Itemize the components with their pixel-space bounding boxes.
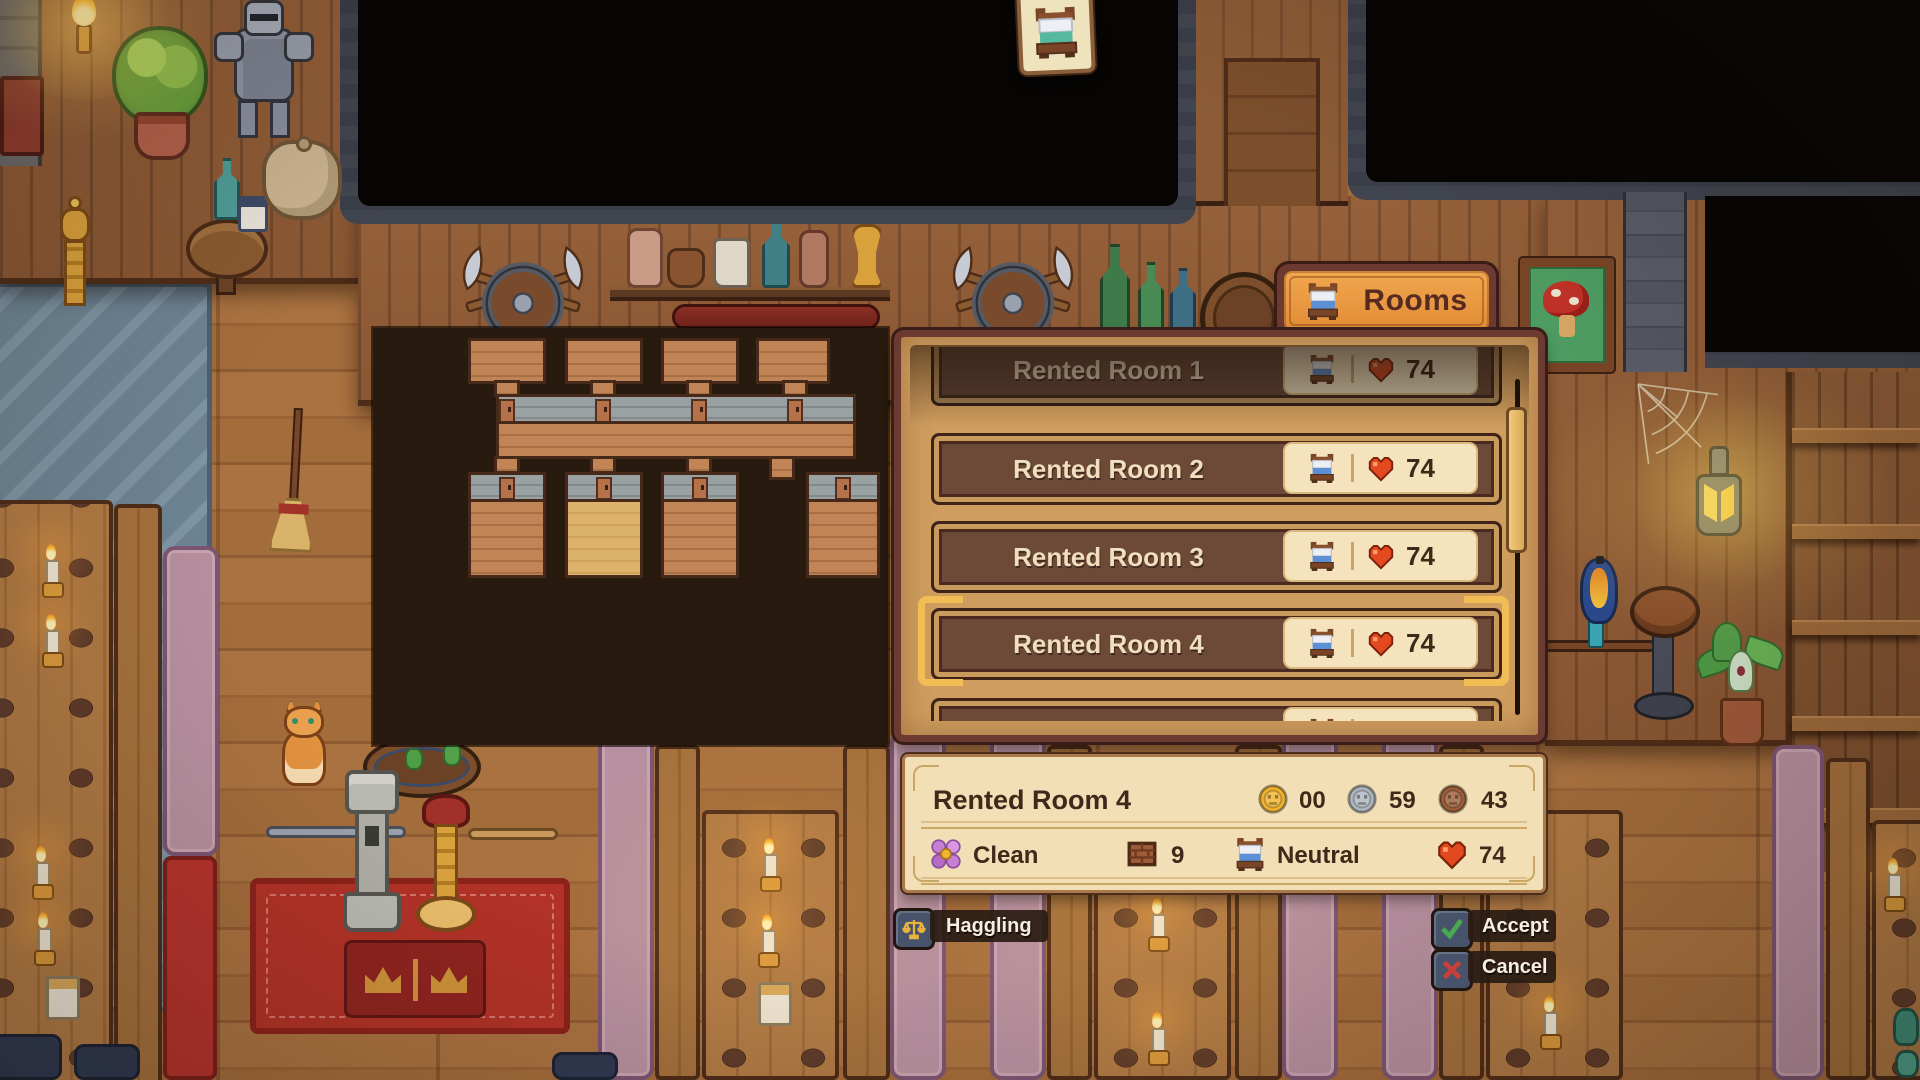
pink-rug [598, 732, 654, 1080]
heart-icon [1366, 718, 1396, 721]
bush-plant [112, 26, 208, 126]
cat [272, 698, 334, 790]
mug [46, 976, 80, 1020]
tenant-mood-value: Neutral [1277, 842, 1360, 870]
room-name: Rented Room 1 [934, 355, 1283, 386]
room-name: Rented Room 5 [934, 719, 1283, 722]
mermaid-figurine [1893, 1008, 1919, 1046]
bed-icon [1307, 718, 1337, 721]
candle [1148, 902, 1166, 948]
room-name: Rented Room 4 [934, 629, 1283, 660]
candle [32, 850, 50, 896]
room-list-rows: Rented Room 1 74 Rented Room 2 74 Rented… [901, 347, 1538, 721]
bench [655, 745, 700, 1080]
chair [552, 1052, 618, 1080]
dark-room-opening [1366, 0, 1920, 182]
wall-shelf [610, 287, 890, 301]
pill-divider [1351, 719, 1354, 721]
accept-button[interactable]: Accept [1431, 908, 1556, 950]
rating-value: 74 [1479, 842, 1506, 870]
clay-jug [799, 230, 829, 288]
room-rating: 74 [1406, 541, 1435, 572]
chair [0, 1034, 62, 1080]
candle [758, 918, 776, 964]
weapon-rack-bar [468, 828, 558, 840]
bowl [667, 248, 705, 288]
bench [843, 745, 890, 1080]
scales-icon [893, 908, 935, 950]
broom [258, 406, 330, 559]
bar-stool [1626, 586, 1704, 738]
pill-divider [1351, 629, 1354, 657]
red-carpet [250, 878, 570, 1034]
size-value: 9 [1171, 842, 1184, 870]
rooms-tab[interactable]: Rooms [1277, 264, 1496, 338]
divider [921, 821, 1527, 829]
stone-rook-statue [341, 770, 403, 936]
price-copper: 43 [1481, 787, 1508, 815]
cross-icon [1431, 949, 1473, 991]
room-list-item[interactable]: Rented Room 5 76 [931, 698, 1502, 721]
dark-room-frame [1348, 0, 1920, 200]
cleanliness-flower-icon [929, 837, 963, 871]
room-list-item[interactable]: Rented Room 4 74 [931, 608, 1502, 680]
heart-icon [1366, 453, 1396, 483]
accept-label: Accept [1468, 910, 1556, 942]
heart-icon [1366, 541, 1396, 571]
heart-icon [1366, 354, 1396, 384]
haggling-label: Haggling [930, 910, 1048, 942]
room-rating: 74 [1406, 628, 1435, 659]
room-status-pill: 74 [1283, 347, 1478, 395]
bench [114, 504, 162, 1080]
room-status-pill: 76 [1283, 707, 1478, 721]
price-silver: 59 [1389, 787, 1416, 815]
bed-icon [1304, 282, 1342, 320]
dark-room-opening [1705, 196, 1920, 352]
hanging-roll [672, 304, 880, 330]
dark-room-frame [1705, 196, 1920, 368]
bed-icon [1307, 453, 1337, 483]
plant-pot [134, 112, 190, 160]
check-icon [1431, 908, 1473, 950]
stone-pillar [1623, 192, 1687, 372]
boot-mug [713, 238, 750, 288]
mermaid-figurine [1895, 1050, 1919, 1078]
bed-icon [1029, 3, 1083, 61]
wall-lantern [1692, 446, 1746, 546]
candle [1148, 1016, 1166, 1062]
cancel-button[interactable]: Cancel [1431, 949, 1556, 991]
room-name: Rented Room 3 [934, 542, 1283, 573]
wall-lamp [62, 0, 106, 58]
candle [42, 548, 60, 594]
room-detail-panel: Rented Room 4 00 59 43 Clean 9 Neutral 7… [902, 754, 1546, 893]
room-status-pill: 74 [1283, 442, 1478, 494]
room-sign [1016, 0, 1096, 76]
gold-column [52, 196, 98, 310]
candle [760, 842, 778, 888]
room-rating: 74 [1406, 453, 1435, 484]
bed-icon [1307, 628, 1337, 658]
candle [42, 618, 60, 664]
room-name: Rented Room 2 [934, 454, 1283, 485]
rooms-tab-label: Rooms [1342, 284, 1489, 318]
room-list-panel: Rented Room 1 74 Rented Room 2 74 Rented… [894, 330, 1545, 742]
candle [34, 916, 52, 962]
room-status-pill: 74 [1283, 617, 1478, 669]
bench [1826, 758, 1870, 1080]
potted-plant [1694, 622, 1786, 750]
room-rating: 74 [1406, 354, 1435, 385]
pill-divider [1351, 355, 1354, 383]
room-detail-title: Rented Room 4 [933, 785, 1131, 816]
bed-icon [1307, 354, 1337, 384]
room-rating: 76 [1406, 718, 1435, 722]
gold-coin-icon [1257, 783, 1289, 815]
mug [758, 982, 792, 1026]
heart-icon [1435, 837, 1469, 871]
divider [921, 877, 1527, 885]
candle [1884, 862, 1902, 908]
copper-coin-icon [1437, 783, 1469, 815]
heart-icon [1366, 628, 1396, 658]
room-list-item[interactable]: Rented Room 3 74 [931, 521, 1502, 593]
mug [238, 196, 268, 232]
pill-divider [1351, 454, 1354, 482]
size-brick-icon [1125, 837, 1159, 871]
red-bench [0, 76, 44, 156]
haggling-button[interactable]: Haggling [893, 908, 1048, 950]
bed-icon [1307, 541, 1337, 571]
gold-candelabra-statue [414, 794, 478, 936]
parrot [1572, 552, 1626, 652]
scrollbar-thumb[interactable] [1506, 407, 1527, 553]
candle [1540, 1000, 1558, 1046]
knight-armor-statue [210, 0, 318, 152]
room-list-item[interactable]: Rented Room 1 74 [931, 347, 1502, 406]
pink-rug [1772, 745, 1824, 1080]
room-status-pill: 74 [1283, 530, 1478, 582]
red-runner-rug [163, 856, 217, 1080]
bed-icon [1233, 837, 1267, 871]
price-gold: 00 [1299, 787, 1326, 815]
flower-vase [627, 228, 663, 288]
chair [74, 1044, 140, 1080]
room-map-overlay [373, 328, 888, 745]
pill-divider [1351, 542, 1354, 570]
room-list-item[interactable]: Rented Room 2 74 [931, 433, 1502, 505]
pink-rug [163, 546, 219, 856]
carpet-emblem [344, 940, 486, 1018]
wood-doorway [1196, 0, 1348, 206]
highlighted-room-floor [565, 499, 643, 578]
silver-coin-icon [1346, 783, 1378, 815]
grain-sack [262, 140, 342, 220]
cancel-label: Cancel [1468, 951, 1556, 983]
game-screen: Rooms Rented Room 1 74 Rented Room 2 74 … [0, 0, 1920, 1080]
cleanliness-value: Clean [973, 842, 1038, 870]
